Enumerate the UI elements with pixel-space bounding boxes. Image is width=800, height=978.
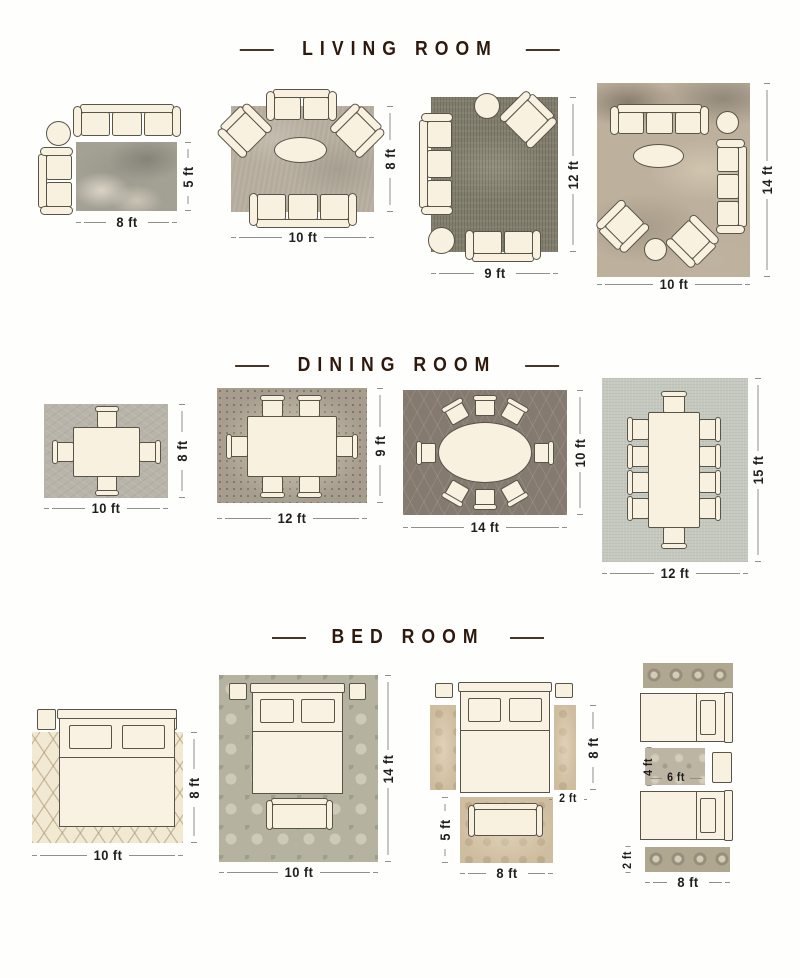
dimension-label: 10 ft [284, 864, 313, 880]
living-room-title: LIVING ROOM [240, 38, 560, 61]
pillow [69, 725, 112, 749]
twin-bed [640, 791, 732, 840]
sofa-three-seat [249, 193, 357, 228]
rug-width-dimension: 8 ft [76, 214, 177, 230]
runner-width-dimension: 2 ft [549, 791, 587, 807]
accent-rug-width-dimension: 6 ft [650, 770, 702, 786]
rug-height-dimension: 5 ft [180, 142, 196, 211]
dimension-label: 8 ft [677, 874, 698, 890]
rug-height-dimension: 12 ft [565, 97, 581, 252]
dining-chair [299, 399, 320, 417]
title-dash [272, 637, 306, 639]
loveseat [38, 147, 73, 215]
sofa-three-seat [73, 104, 181, 137]
runner-rug [643, 663, 733, 688]
area-rug [76, 142, 177, 211]
dimension-label: 12 ft [661, 565, 690, 581]
rug-height-dimension: 8 ft [186, 732, 202, 843]
dimension-label: 5 ft [180, 166, 196, 187]
rug-height-dimension: 8 ft [174, 404, 190, 498]
bed [460, 683, 550, 793]
nightstand [712, 752, 732, 783]
pillow [122, 725, 165, 749]
rug-height-dimension: 10 ft [572, 390, 588, 515]
dining-chair [420, 443, 436, 463]
dimension-label: 10 ft [288, 229, 317, 245]
dimension-label: 14 ft [380, 754, 396, 783]
section-title-text: BED ROOM [331, 626, 484, 649]
rug-width-dimension: 12 ft [217, 510, 367, 526]
runner-width-dimension: 8 ft [645, 874, 730, 890]
dining-chair [699, 498, 717, 519]
headboard [250, 683, 345, 693]
dining-table [247, 416, 337, 477]
dimension-label: 2 ft [622, 851, 634, 869]
rug-width-dimension: 10 ft [32, 847, 183, 863]
title-dash [235, 365, 269, 367]
dining-chair [475, 489, 495, 506]
headboard [458, 682, 552, 692]
bench [468, 803, 543, 837]
rug-width-dimension: 10 ft [231, 229, 374, 245]
blanket-fold [696, 791, 697, 840]
runner-height-dimension: 8 ft [585, 705, 601, 790]
blanket-fold [460, 730, 550, 731]
dimension-label: 8 ft [116, 214, 137, 230]
dimension-label: 10 ft [93, 847, 122, 863]
round-ottoman [428, 227, 455, 254]
accent-rug-height-dimension: 5 ft [437, 797, 453, 863]
round-side-table [716, 111, 739, 134]
headboard [724, 790, 733, 841]
loveseat [465, 230, 541, 262]
dimension-label: 10 ft [659, 276, 688, 292]
blanket-fold [696, 693, 697, 742]
dining-table [648, 412, 700, 528]
sofa-three-seat [419, 113, 453, 215]
dimension-label: 8 ft [174, 440, 190, 461]
dimension-label: 12 ft [278, 510, 307, 526]
dining-chair [475, 399, 495, 416]
nightstand [229, 683, 247, 700]
bed [59, 710, 175, 827]
nightstand [349, 683, 366, 700]
dining-table [73, 427, 140, 477]
dining-chair [631, 472, 649, 493]
nightstand [435, 683, 453, 698]
oval-coffee-table [274, 137, 327, 163]
dimension-label: 12 ft [565, 160, 581, 189]
accent-rug-width-dimension: 8 ft [460, 865, 553, 881]
blanket-fold [59, 757, 175, 758]
pillow [700, 798, 716, 833]
dimension-label: 10 ft [92, 500, 121, 516]
dimension-label: 8 ft [585, 737, 601, 758]
round-side-table [46, 121, 71, 146]
twin-bed [640, 693, 732, 742]
pillow [700, 700, 716, 735]
title-dash [525, 365, 559, 367]
dining-chair [631, 498, 649, 519]
dimension-label: 14 ft [471, 519, 500, 535]
dining-chair [230, 436, 248, 457]
section-title-text: LIVING ROOM [302, 38, 498, 61]
section-title-text: DINING ROOM [298, 354, 497, 377]
rug-width-dimension: 9 ft [431, 265, 558, 281]
loveseat [266, 89, 337, 121]
dining-chair [299, 476, 320, 494]
rug-width-dimension: 10 ft [597, 276, 750, 292]
round-side-table [474, 93, 500, 119]
rug-height-dimension: 14 ft [380, 675, 396, 862]
nightstand [555, 683, 573, 698]
dimension-label: 8 ft [496, 865, 517, 881]
dining-chair [699, 472, 717, 493]
rug-width-dimension: 10 ft [219, 864, 378, 880]
headboard [57, 709, 177, 719]
rug-width-dimension: 10 ft [44, 500, 168, 516]
dining-room-title: DINING ROOM [235, 354, 559, 377]
bed [252, 684, 343, 794]
sofa-three-seat [610, 104, 709, 135]
runner-height-dimension: 2 ft [620, 846, 636, 873]
runner-rug [645, 847, 730, 872]
rug-height-dimension: 14 ft [759, 83, 775, 277]
rug-height-dimension: 9 ft [372, 388, 388, 503]
runner-rug [430, 705, 456, 790]
rug-width-dimension: 14 ft [403, 519, 567, 535]
dining-chair [663, 395, 685, 413]
pillow [260, 699, 294, 723]
dimension-label: 6 ft [667, 772, 685, 784]
dimension-label: 8 ft [382, 148, 398, 169]
title-dash [510, 637, 544, 639]
dining-chair [631, 419, 649, 440]
dining-chair [699, 446, 717, 467]
dining-chair [534, 443, 550, 463]
dimension-label: 14 ft [759, 166, 775, 195]
rug-width-dimension: 12 ft [602, 565, 748, 581]
dimension-label: 10 ft [572, 438, 588, 467]
dining-chair [56, 442, 74, 462]
oval-coffee-table [633, 144, 684, 168]
bench [266, 798, 333, 830]
dining-chair [97, 410, 117, 428]
dining-chair [699, 419, 717, 440]
dimension-label: 2 ft [559, 793, 577, 805]
rug-height-dimension: 8 ft [382, 106, 398, 212]
dimension-label: 5 ft [437, 819, 453, 840]
dining-chair [336, 436, 354, 457]
sofa-three-seat [716, 139, 747, 234]
dimension-label: 9 ft [372, 435, 388, 456]
dimension-label: 15 ft [750, 456, 766, 485]
dining-chair [631, 446, 649, 467]
title-dash [526, 49, 560, 51]
blanket-fold [252, 731, 343, 732]
dimension-label: 8 ft [186, 777, 202, 798]
oval-dining-table [438, 422, 532, 483]
rug-height-dimension: 15 ft [750, 378, 766, 562]
pillow [468, 698, 501, 722]
dining-chair [262, 399, 283, 417]
pillow [301, 699, 335, 723]
rug-size-guide: LIVING ROOM DINING ROOM BED ROOM 5 ft 8 … [0, 0, 800, 978]
headboard [724, 692, 733, 743]
pillow [509, 698, 542, 722]
title-dash [240, 49, 274, 51]
dimension-label: 9 ft [484, 265, 505, 281]
dining-chair [262, 476, 283, 494]
bed-room-title: BED ROOM [272, 626, 544, 649]
dining-chair [139, 442, 157, 462]
nightstand [37, 709, 56, 730]
dining-chair [663, 527, 685, 545]
runner-rug [554, 705, 576, 790]
round-ottoman [644, 238, 667, 261]
